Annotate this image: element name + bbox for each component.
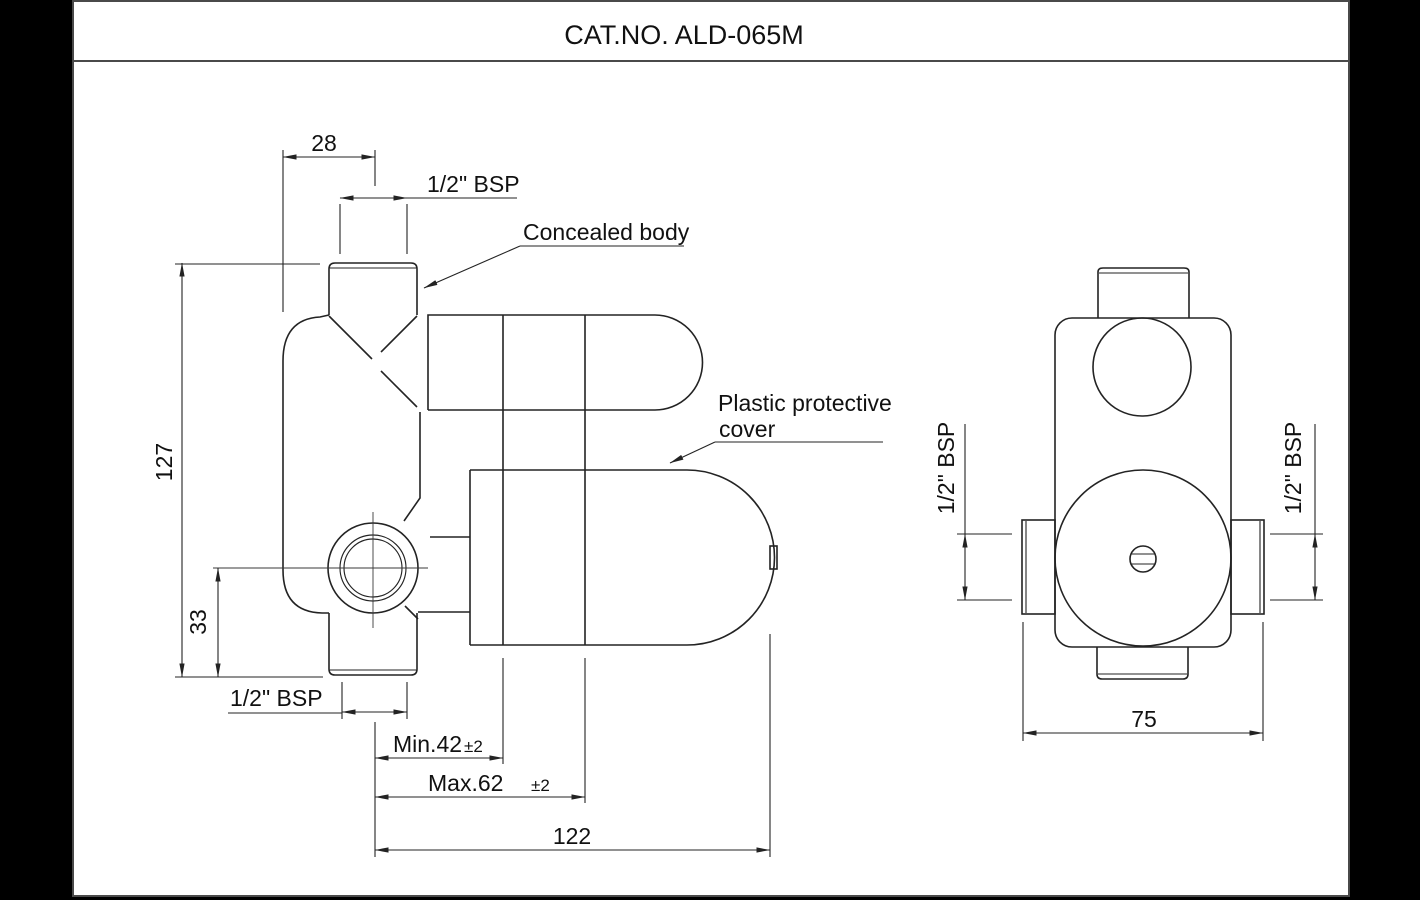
dim-min42-tolerance: ±2 — [464, 737, 483, 756]
dim-127-label: 127 — [151, 443, 177, 481]
dim-33-label: 33 — [185, 609, 211, 635]
title-block: CAT.NO. ALD-065M — [564, 20, 804, 50]
dim-122-label: 122 — [553, 823, 591, 849]
concealed-body-label: Concealed body — [523, 219, 690, 245]
dim-max62-label: Max.62 — [428, 770, 503, 796]
sheet-border — [73, 1, 1349, 896]
dim-max62-tolerance: ±2 — [531, 776, 550, 795]
dim-min42-label: Min.42 — [393, 731, 462, 757]
technical-drawing: CAT.NO. ALD-065M — [0, 0, 1420, 900]
dim-bsp-top-label: 1/2" BSP — [427, 171, 520, 197]
plastic-cover-label-line2: cover — [719, 416, 776, 442]
dim-bsp-front-right-label: 1/2" BSP — [1280, 422, 1306, 515]
dim-bsp-bottom-label: 1/2" BSP — [230, 685, 323, 711]
drawing-page: CAT.NO. ALD-065M — [0, 0, 1420, 900]
drawing-title: CAT.NO. ALD-065M — [564, 20, 804, 50]
plastic-cover-label-line1: Plastic protective — [718, 390, 892, 416]
dim-bsp-front-left-label: 1/2" BSP — [933, 422, 959, 515]
sheet — [73, 1, 1349, 896]
dim-28-label: 28 — [311, 130, 337, 156]
dim-75-label: 75 — [1131, 706, 1157, 732]
